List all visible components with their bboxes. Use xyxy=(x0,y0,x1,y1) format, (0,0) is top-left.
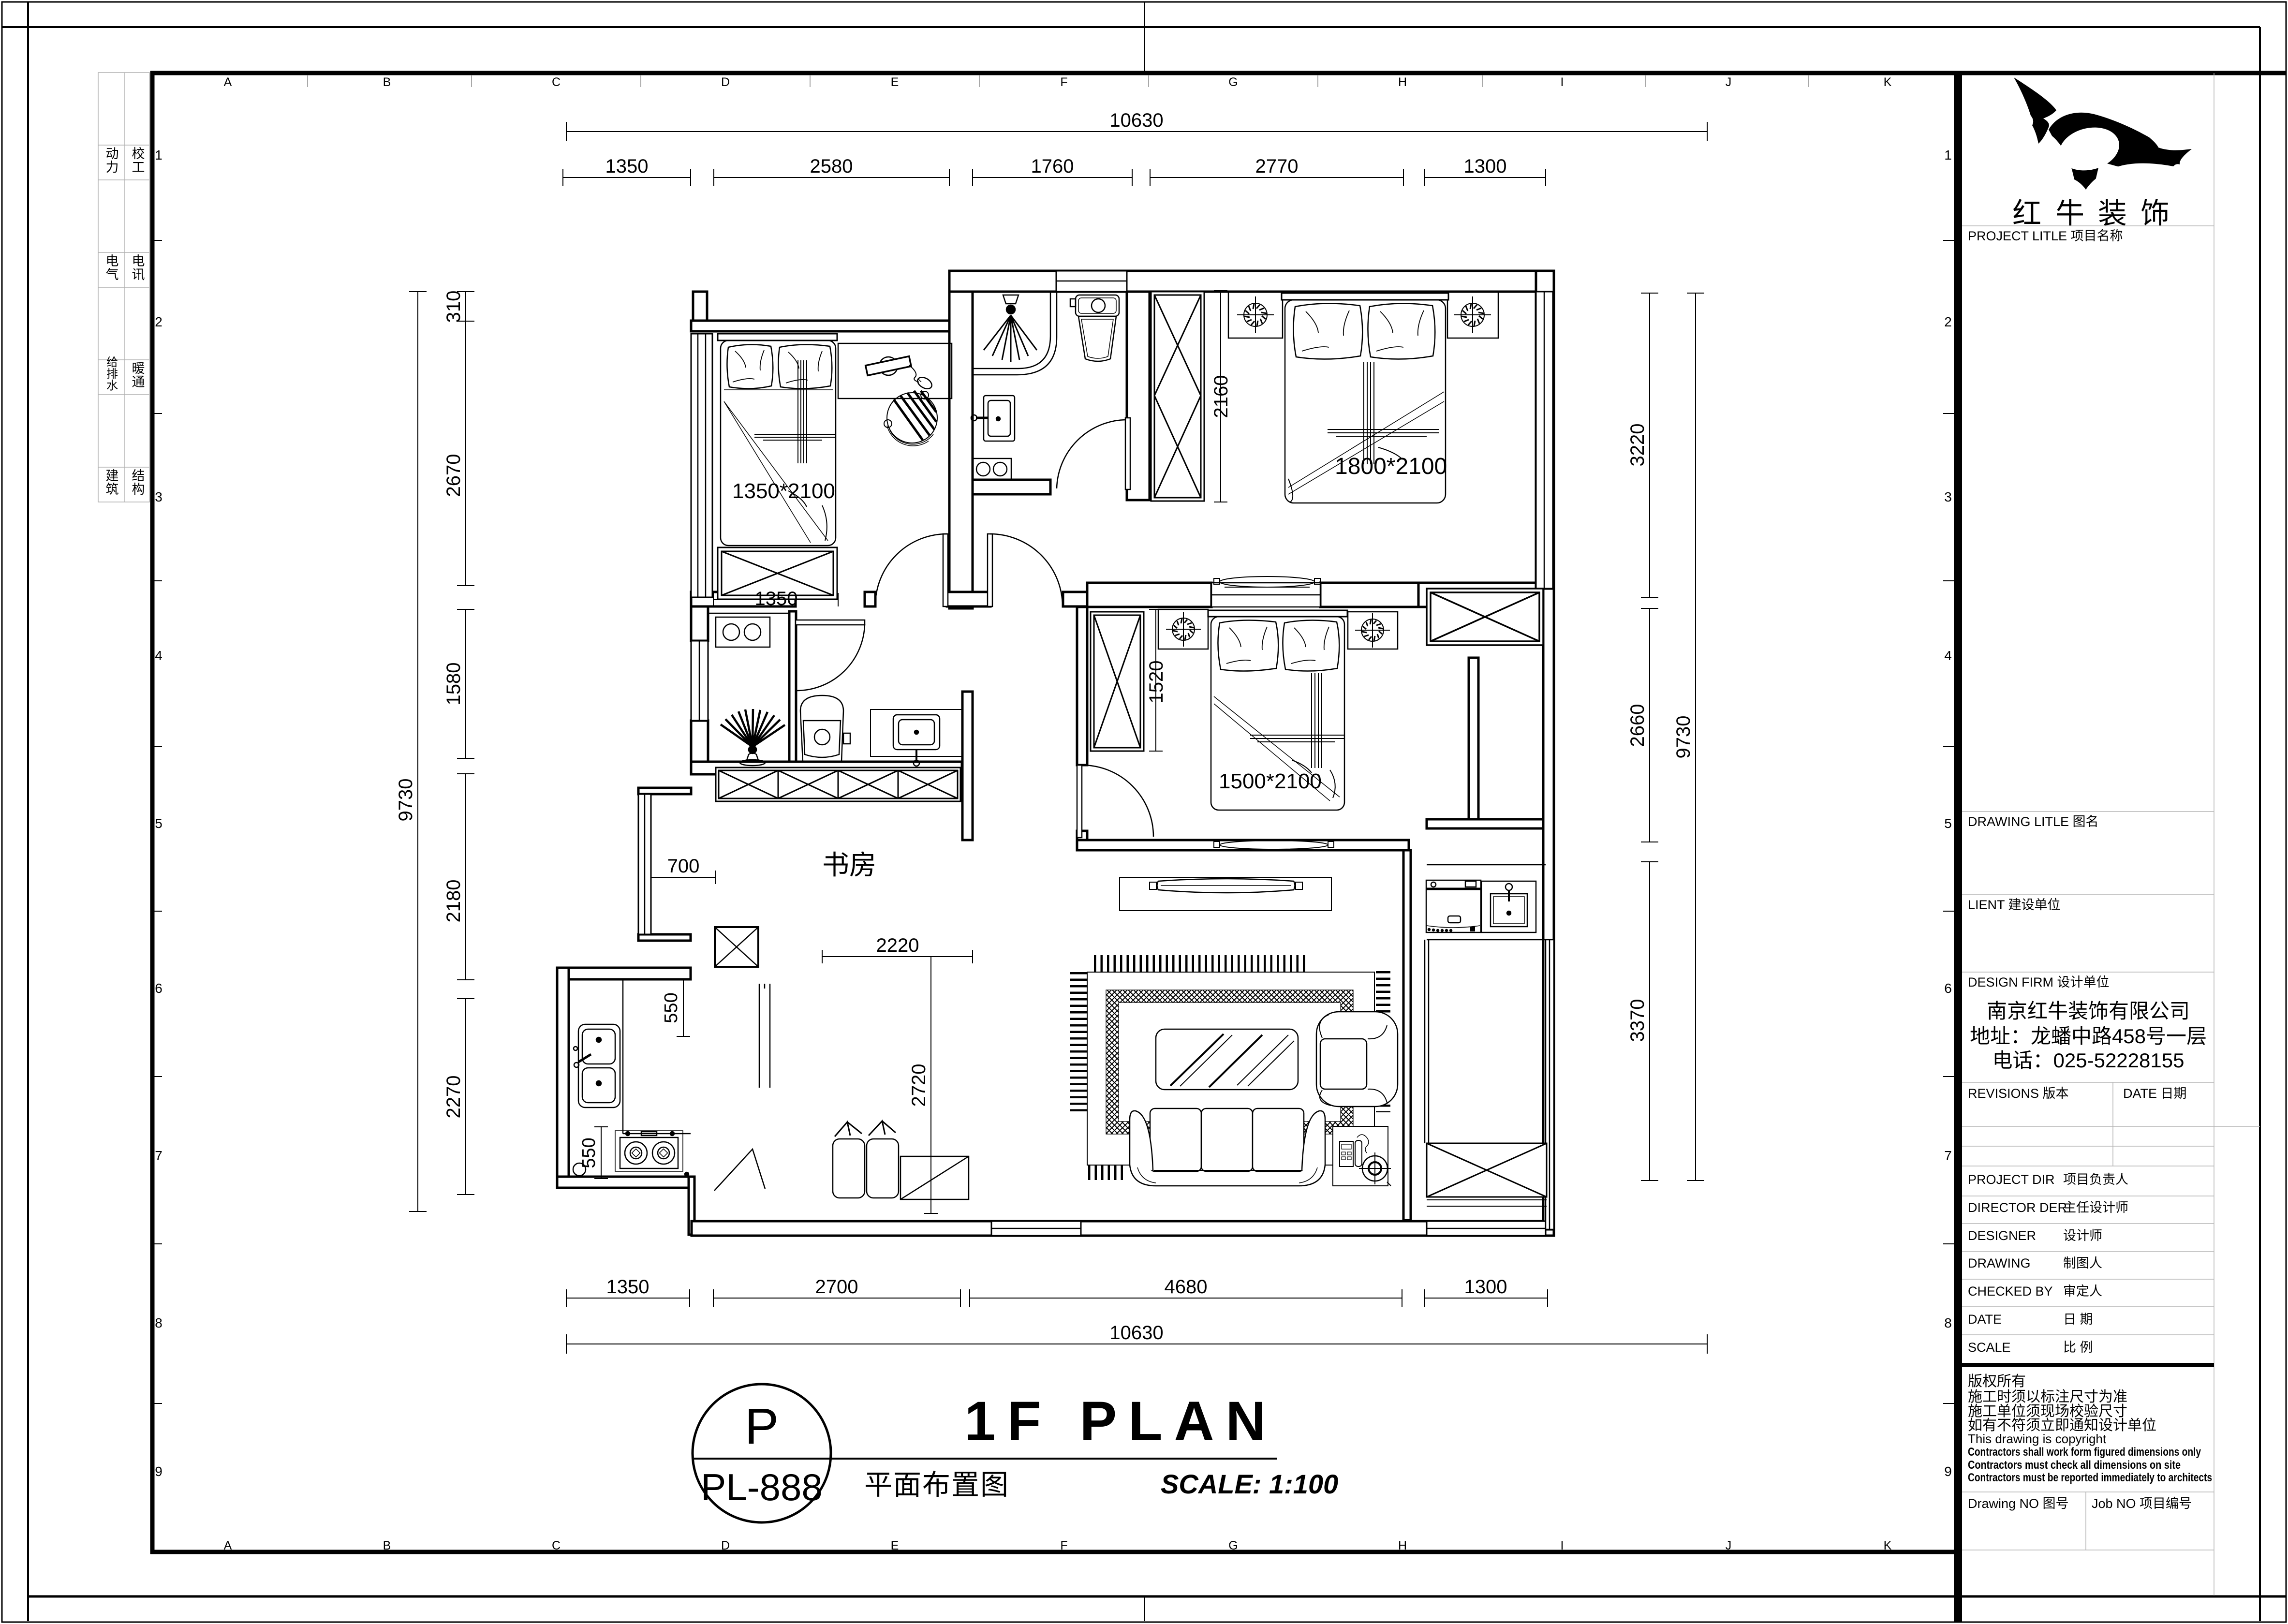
svg-text:2770: 2770 xyxy=(1255,156,1299,177)
svg-text:PL-888: PL-888 xyxy=(701,1466,823,1508)
svg-text:暖: 暖 xyxy=(132,361,145,376)
svg-text:Contractors must be reported i: Contractors must be reported immediately… xyxy=(1968,1471,2212,1484)
svg-text:1500*2100: 1500*2100 xyxy=(1219,769,1322,793)
svg-text:PROJECT LITLE 项目名称: PROJECT LITLE 项目名称 xyxy=(1968,229,2123,243)
svg-text:3220: 3220 xyxy=(1627,424,1648,467)
svg-text:2270: 2270 xyxy=(443,1076,464,1119)
svg-text:SCALE: SCALE xyxy=(1968,1340,2011,1355)
svg-text:H: H xyxy=(1398,1539,1407,1552)
svg-text:CHECKED BY: CHECKED BY xyxy=(1968,1284,2053,1299)
svg-text:Contractors shall work form fi: Contractors shall work form figured dime… xyxy=(1968,1446,2201,1459)
svg-text:2160: 2160 xyxy=(1210,375,1232,418)
svg-text:7: 7 xyxy=(155,1148,162,1163)
svg-text:PROJECT DIR: PROJECT DIR xyxy=(1968,1172,2055,1187)
svg-text:5: 5 xyxy=(155,816,162,831)
svg-text:Contractors must check all dim: Contractors must check all dimensions on… xyxy=(1968,1459,2181,1472)
svg-text:K: K xyxy=(1884,1539,1892,1552)
svg-text:1350: 1350 xyxy=(606,1276,649,1298)
svg-text:5: 5 xyxy=(1944,816,1952,831)
svg-text:设计师: 设计师 xyxy=(2063,1228,2102,1243)
svg-text:2660: 2660 xyxy=(1627,704,1648,747)
svg-text:2: 2 xyxy=(155,314,162,329)
svg-text:B: B xyxy=(383,75,391,89)
svg-text:4: 4 xyxy=(155,648,162,663)
svg-text:LIENT 建设单位: LIENT 建设单位 xyxy=(1968,898,2061,912)
svg-text:电: 电 xyxy=(132,254,145,268)
svg-text:K: K xyxy=(1884,75,1892,89)
svg-text:2670: 2670 xyxy=(443,454,464,497)
svg-text:1300: 1300 xyxy=(1464,1276,1507,1298)
svg-text:饰: 饰 xyxy=(2140,197,2170,230)
svg-text:9: 9 xyxy=(1944,1464,1952,1479)
svg-text:构: 构 xyxy=(132,482,145,497)
svg-text:1350: 1350 xyxy=(605,156,649,177)
svg-text:2720: 2720 xyxy=(908,1064,930,1107)
svg-text:建: 建 xyxy=(106,469,119,483)
svg-text:牛: 牛 xyxy=(2055,197,2084,230)
svg-text:平面布置图: 平面布置图 xyxy=(864,1469,1009,1501)
svg-text:7: 7 xyxy=(1944,1148,1952,1163)
svg-text:DIRECTOR DER: DIRECTOR DER xyxy=(1968,1200,2067,1215)
svg-text:SCALE: 1:100: SCALE: 1:100 xyxy=(1161,1469,1338,1499)
svg-text:10630: 10630 xyxy=(1109,110,1163,131)
svg-text:结: 结 xyxy=(132,469,145,483)
svg-text:南京红牛装饰有限公司: 南京红牛装饰有限公司 xyxy=(1987,1000,2190,1022)
svg-text:4680: 4680 xyxy=(1165,1276,1208,1298)
svg-text:红: 红 xyxy=(2012,197,2041,230)
svg-text:1800*2100: 1800*2100 xyxy=(1335,454,1447,479)
svg-text:地址：龙蟠中路458号一层: 地址：龙蟠中路458号一层 xyxy=(1970,1025,2207,1048)
svg-text:6: 6 xyxy=(1944,981,1952,996)
svg-text:力: 力 xyxy=(106,160,119,175)
svg-text:8: 8 xyxy=(155,1315,162,1330)
svg-text:I: I xyxy=(1561,75,1564,89)
svg-text:DRAWING LITLE 图名: DRAWING LITLE 图名 xyxy=(1968,814,2099,829)
svg-text:G: G xyxy=(1228,75,1238,89)
svg-text:日 期: 日 期 xyxy=(2063,1312,2093,1327)
svg-text:电话：025-52228155: 电话：025-52228155 xyxy=(1993,1049,2185,1072)
svg-text:1: 1 xyxy=(1944,148,1952,162)
svg-text:1520: 1520 xyxy=(1146,661,1167,704)
svg-text:版权所有: 版权所有 xyxy=(1968,1373,2026,1389)
svg-text:3370: 3370 xyxy=(1627,999,1648,1042)
svg-text:550: 550 xyxy=(661,992,681,1023)
svg-text:10630: 10630 xyxy=(1109,1322,1163,1343)
svg-text:P: P xyxy=(745,1398,779,1455)
svg-text:J: J xyxy=(1726,75,1732,89)
svg-text:4: 4 xyxy=(1944,648,1952,663)
svg-text:DATE 日期: DATE 日期 xyxy=(2123,1086,2187,1101)
svg-text:This drawing is copyright: This drawing is copyright xyxy=(1968,1432,2107,1446)
svg-text:2580: 2580 xyxy=(810,156,853,177)
svg-text:700: 700 xyxy=(667,856,700,877)
svg-text:比 例: 比 例 xyxy=(2063,1340,2093,1355)
svg-text:J: J xyxy=(1726,1539,1732,1552)
svg-text:DATE: DATE xyxy=(1968,1312,2002,1327)
svg-text:H: H xyxy=(1398,75,1407,89)
svg-text:工: 工 xyxy=(132,160,145,175)
svg-text:3: 3 xyxy=(155,489,162,504)
svg-text:310: 310 xyxy=(443,291,464,323)
svg-text:550: 550 xyxy=(579,1137,599,1168)
svg-text:F: F xyxy=(1060,75,1067,89)
svg-text:1F PLAN: 1F PLAN xyxy=(964,1390,1277,1452)
svg-text:筑: 筑 xyxy=(106,482,119,497)
svg-text:C: C xyxy=(552,75,561,89)
svg-text:通: 通 xyxy=(132,375,145,389)
svg-text:水: 水 xyxy=(106,379,118,392)
svg-text:DRAWING: DRAWING xyxy=(1968,1256,2031,1270)
svg-text:制图人: 制图人 xyxy=(2063,1256,2102,1270)
svg-text:1300: 1300 xyxy=(1464,156,1507,177)
svg-text:A: A xyxy=(224,1539,232,1552)
svg-text:Job NO 项目编号: Job NO 项目编号 xyxy=(2092,1496,2192,1511)
svg-text:B: B xyxy=(383,1539,391,1552)
svg-text:2: 2 xyxy=(1944,314,1952,329)
svg-text:A: A xyxy=(224,75,232,89)
svg-text:9: 9 xyxy=(155,1464,162,1479)
svg-text:气: 气 xyxy=(106,267,119,282)
svg-text:项目负责人: 项目负责人 xyxy=(2063,1172,2128,1187)
svg-text:排: 排 xyxy=(106,368,118,381)
svg-text:装: 装 xyxy=(2098,197,2127,230)
svg-text:校: 校 xyxy=(132,147,145,161)
svg-text:6: 6 xyxy=(155,981,162,996)
svg-text:1760: 1760 xyxy=(1031,156,1074,177)
svg-text:D: D xyxy=(721,75,730,89)
svg-text:2180: 2180 xyxy=(443,880,464,923)
svg-text:D: D xyxy=(721,1539,730,1552)
svg-text:主任设计师: 主任设计师 xyxy=(2063,1200,2128,1215)
svg-text:I: I xyxy=(1561,1539,1564,1552)
svg-text:2700: 2700 xyxy=(815,1276,858,1298)
svg-text:F: F xyxy=(1060,1539,1067,1552)
svg-text:施工时须以标注尺寸为准: 施工时须以标注尺寸为准 xyxy=(1968,1389,2127,1405)
svg-text:9730: 9730 xyxy=(395,779,416,822)
svg-text:E: E xyxy=(891,75,899,89)
svg-text:Drawing NO 图号: Drawing NO 图号 xyxy=(1968,1496,2069,1511)
svg-text:9730: 9730 xyxy=(1673,716,1694,759)
svg-text:8: 8 xyxy=(1944,1315,1952,1330)
svg-text:DESIGN FIRM 设计单位: DESIGN FIRM 设计单位 xyxy=(1968,975,2110,989)
svg-text:1: 1 xyxy=(155,148,162,162)
svg-text:动: 动 xyxy=(106,147,119,161)
svg-text:E: E xyxy=(891,1539,899,1552)
svg-text:DESIGNER: DESIGNER xyxy=(1968,1228,2036,1243)
svg-text:电: 电 xyxy=(106,254,119,268)
svg-text:3: 3 xyxy=(1944,489,1952,504)
svg-text:给: 给 xyxy=(106,356,118,369)
svg-text:REVISIONS 版本: REVISIONS 版本 xyxy=(1968,1086,2069,1101)
svg-text:讯: 讯 xyxy=(132,267,145,282)
svg-text:G: G xyxy=(1228,1539,1238,1552)
svg-text:1580: 1580 xyxy=(443,663,464,706)
svg-text:1350: 1350 xyxy=(755,588,798,609)
svg-text:2220: 2220 xyxy=(876,935,919,956)
svg-text:审定人: 审定人 xyxy=(2063,1284,2102,1299)
svg-text:书房: 书房 xyxy=(822,850,876,880)
svg-text:C: C xyxy=(552,1539,561,1552)
svg-text:1350*2100: 1350*2100 xyxy=(732,479,835,503)
